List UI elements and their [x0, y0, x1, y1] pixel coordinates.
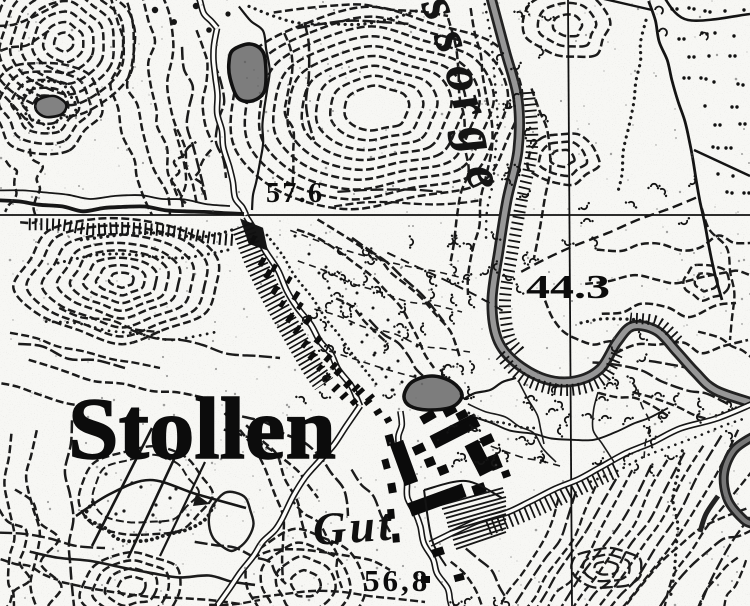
- svg-text:56,8: 56,8: [364, 563, 430, 598]
- svg-text:44.3: 44.3: [526, 269, 610, 306]
- svg-text:57.6: 57.6: [266, 178, 322, 209]
- svg-text:Stollen: Stollen: [68, 381, 336, 478]
- svg-text:Gut: Gut: [311, 499, 394, 555]
